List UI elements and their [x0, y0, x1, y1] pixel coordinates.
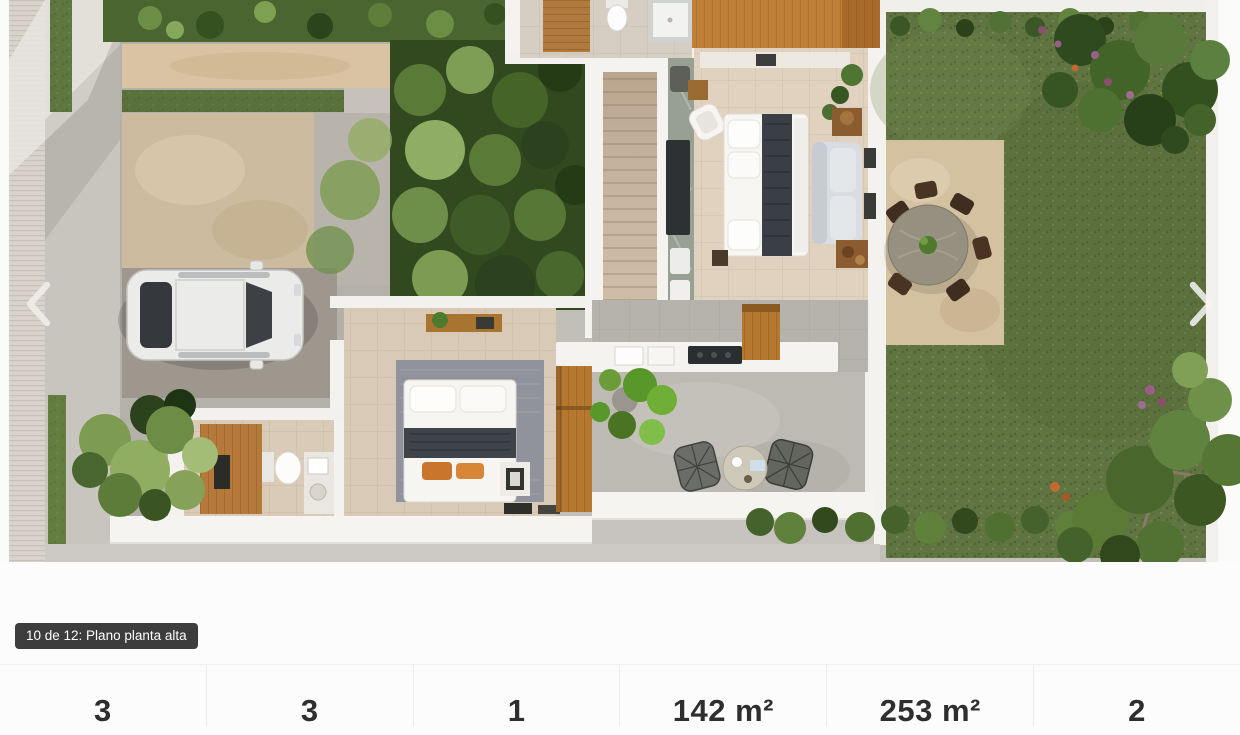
master-bed — [712, 114, 808, 266]
wardrobe — [556, 366, 592, 512]
gallery-image[interactable] — [0, 0, 1240, 562]
terrace-seating — [672, 438, 814, 494]
bathroom-top — [520, 0, 692, 58]
gallery-next-button[interactable] — [1180, 272, 1224, 336]
stat-built-area: 142 m² — [619, 665, 826, 726]
chevron-left-icon — [25, 281, 51, 327]
car — [118, 261, 318, 370]
stat-lot-area: 253 m² — [826, 665, 1033, 726]
stat-bathrooms: 3 — [206, 665, 413, 726]
stat-value: 2 — [1128, 695, 1146, 726]
stat-value: 253 m² — [880, 695, 981, 726]
stat-value: 1 — [508, 695, 526, 726]
chevron-right-icon — [1189, 281, 1215, 327]
staircase — [585, 58, 675, 338]
kitchen — [556, 300, 868, 372]
stat-value: 3 — [301, 695, 319, 726]
stat-value: 3 — [94, 695, 112, 726]
stat-bedrooms: 3 — [0, 665, 206, 726]
stat-parking: 2 — [1033, 665, 1240, 726]
property-stats-row: 3 3 1 142 m² 253 m² 2 — [0, 664, 1240, 735]
stat-half-bathrooms: 1 — [413, 665, 620, 726]
gallery-prev-button[interactable] — [16, 272, 60, 336]
wood-deck — [692, 0, 880, 56]
floor-plan-render — [0, 0, 1240, 562]
stat-value: 142 m² — [673, 695, 774, 726]
image-counter-badge: 10 de 12: Plano planta alta — [15, 623, 198, 649]
